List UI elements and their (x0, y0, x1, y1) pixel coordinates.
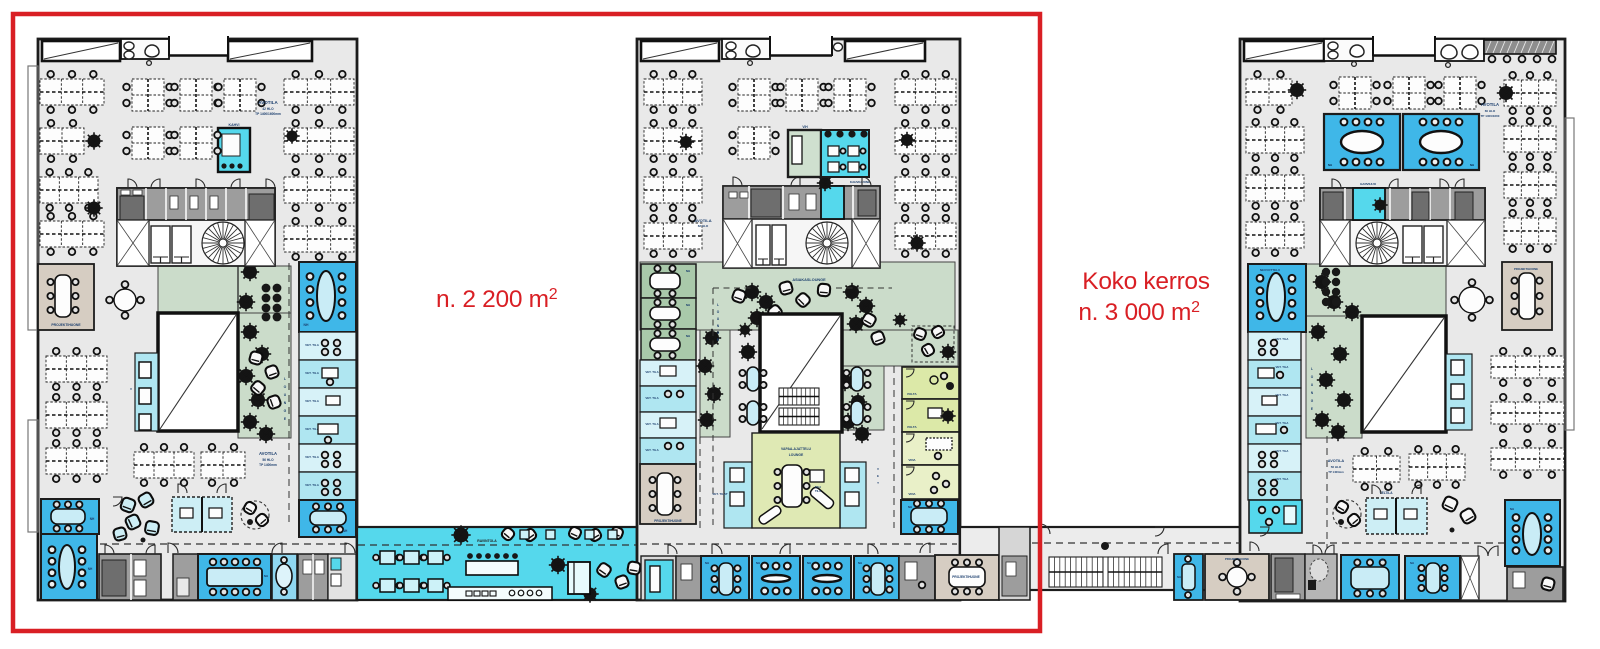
svg-text:56 HLO: 56 HLO (1331, 465, 1342, 469)
svg-text:VET. TILA: VET. TILA (305, 483, 320, 487)
svg-text:LOUNGE: LOUNGE (789, 453, 804, 457)
svg-text:TP 1400/1600mm: TP 1400/1600mm (255, 112, 281, 116)
svg-text:O: O (284, 385, 287, 389)
svg-text:NH: NH (1470, 163, 1474, 167)
svg-text:VET. TILA: VET. TILA (305, 371, 320, 375)
svg-text:TP 1400/1600: TP 1400/1600 (1481, 114, 1500, 118)
svg-text:NH: NH (1380, 558, 1384, 562)
svg-text:VRIA: VRIA (908, 492, 916, 496)
svg-text:VET. TILA: VET. TILA (645, 448, 659, 452)
svg-text:VET. TILA: VET. TILA (1276, 421, 1289, 425)
svg-text:V: V (877, 467, 879, 471)
svg-text:42 HLO: 42 HLO (262, 107, 274, 111)
svg-text:NH: NH (858, 561, 862, 565)
svg-text:PROJEKTIHUONE: PROJEKTIHUONE (1225, 557, 1249, 561)
svg-text:PALTA: PALTA (907, 425, 917, 429)
svg-text:T: T (877, 481, 879, 485)
svg-text:PROJEKTIHUONE: PROJEKTIHUONE (1514, 267, 1538, 271)
svg-text:VET. TILA: VET. TILA (645, 422, 659, 426)
svg-text:AVOTILA: AVOTILA (694, 218, 711, 223)
svg-text:NH: NH (756, 561, 760, 565)
svg-text:60 HLO: 60 HLO (1485, 109, 1496, 113)
svg-text:NH: NH (1410, 561, 1414, 565)
svg-text:E: E (877, 474, 879, 478)
svg-text:NH: NH (807, 561, 811, 565)
svg-text:V: V (130, 387, 132, 391)
svg-text:KAHVI: KAHVI (229, 123, 240, 127)
svg-text:L: L (1311, 367, 1313, 371)
svg-text:VRIA: VRIA (908, 458, 916, 462)
svg-text:VET. TILA: VET. TILA (1276, 449, 1289, 453)
svg-text:NH: NH (343, 529, 348, 533)
svg-text:VAPAA-AJATTELU: VAPAA-AJATTELU (781, 447, 811, 451)
svg-text:VET. TILA: VET. TILA (305, 455, 320, 459)
svg-text:E: E (1311, 407, 1313, 411)
svg-text:TP 1400mm: TP 1400mm (259, 463, 277, 467)
svg-text:NH: NH (705, 561, 709, 565)
svg-text:NH: NH (686, 269, 690, 273)
svg-text:PROJEKTIHUONE: PROJEKTIHUONE (51, 323, 81, 327)
svg-text:E: E (717, 338, 719, 342)
svg-text:VET. TILA: VET. TILA (645, 396, 659, 400)
svg-text:RAVINTOLA: RAVINTOLA (477, 539, 497, 543)
svg-text:VIH: VIH (802, 125, 808, 129)
svg-text:AVOTILA: AVOTILA (258, 100, 278, 105)
svg-text:56 HLO: 56 HLO (262, 458, 274, 462)
svg-text:L: L (284, 377, 286, 381)
svg-text:VET. TILA: VET. TILA (1276, 477, 1289, 481)
svg-text:Koko kerros: Koko kerros (1082, 268, 1209, 295)
svg-text:VET. TILA: VET. TILA (305, 343, 320, 347)
svg-text:NH: NH (304, 323, 309, 327)
svg-text:VET. TILA: VET. TILA (1276, 365, 1289, 369)
svg-text:G: G (284, 409, 287, 413)
svg-text:L: L (717, 303, 719, 307)
svg-text:VET. TILA: VET. TILA (1276, 337, 1289, 341)
svg-text:NH: NH (908, 505, 912, 509)
svg-text:NH: NH (264, 574, 268, 578)
svg-text:62 HLO: 62 HLO (698, 224, 709, 228)
svg-text:TP 1400mm: TP 1400mm (1328, 470, 1344, 474)
svg-text:VET. TILAT: VET. TILAT (712, 492, 728, 496)
svg-text:n. 3 000 m2: n. 3 000 m2 (1078, 299, 1200, 326)
svg-text:VELTILA: VELTILA (1379, 491, 1393, 495)
svg-text:AVOTILA: AVOTILA (1481, 102, 1499, 107)
svg-text:PROJEKTIHUONE: PROJEKTIHUONE (654, 519, 681, 523)
svg-text:VET. TILA: VET. TILA (645, 370, 659, 374)
svg-text:PALTA: PALTA (907, 392, 917, 396)
svg-text:NH: NH (1177, 575, 1181, 579)
svg-text:NH: NH (686, 303, 690, 307)
svg-text:n. 2 200 m2: n. 2 200 m2 (436, 286, 558, 313)
svg-text:ASIAKASLOUNGE: ASIAKASLOUNGE (792, 278, 826, 282)
svg-text:AVOTILA: AVOTILA (259, 451, 277, 456)
svg-text:NH: NH (1510, 507, 1514, 511)
svg-text:PROJEKTIHUONE: PROJEKTIHUONE (952, 575, 979, 579)
svg-text:NEUVOTTELU: NEUVOTTELU (1260, 268, 1280, 272)
svg-text:NH: NH (90, 517, 95, 521)
svg-text:VET. TILA: VET. TILA (305, 399, 320, 403)
svg-text:NH: NH (1328, 163, 1332, 167)
svg-text:KAHVIHUONE: KAHVIHUONE (850, 180, 870, 184)
svg-text:GARVIHUO: GARVIHUO (1360, 182, 1377, 186)
svg-text:TILA: TILA (815, 489, 821, 493)
svg-text:AVOTILA: AVOTILA (1328, 459, 1345, 463)
svg-text:NH: NH (686, 334, 690, 338)
svg-text:NH: NH (88, 567, 93, 571)
